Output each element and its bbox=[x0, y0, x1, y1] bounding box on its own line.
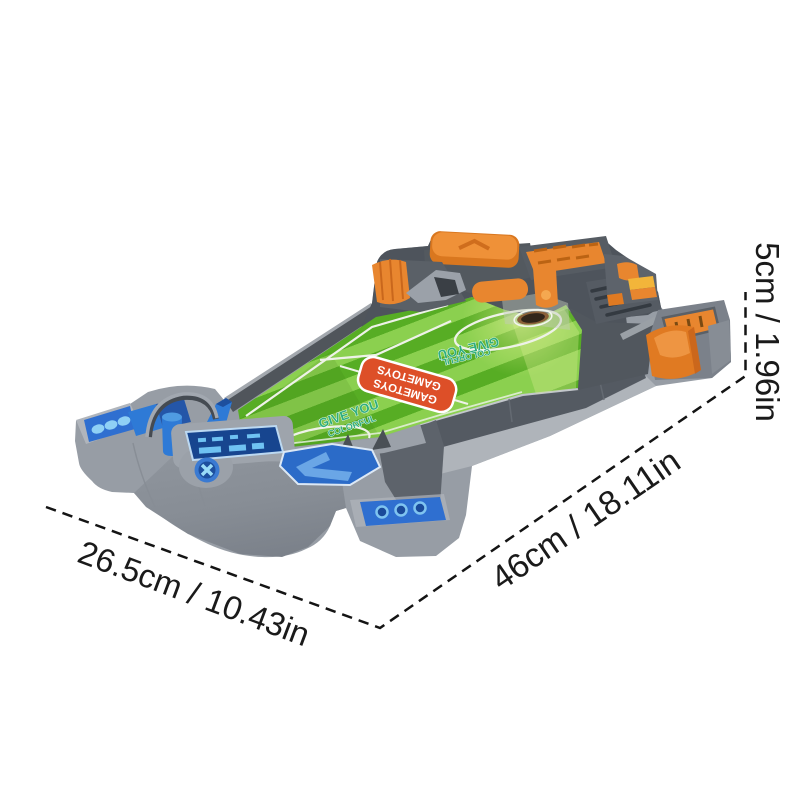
svg-text:5cm / 1.96in: 5cm / 1.96in bbox=[749, 242, 786, 422]
